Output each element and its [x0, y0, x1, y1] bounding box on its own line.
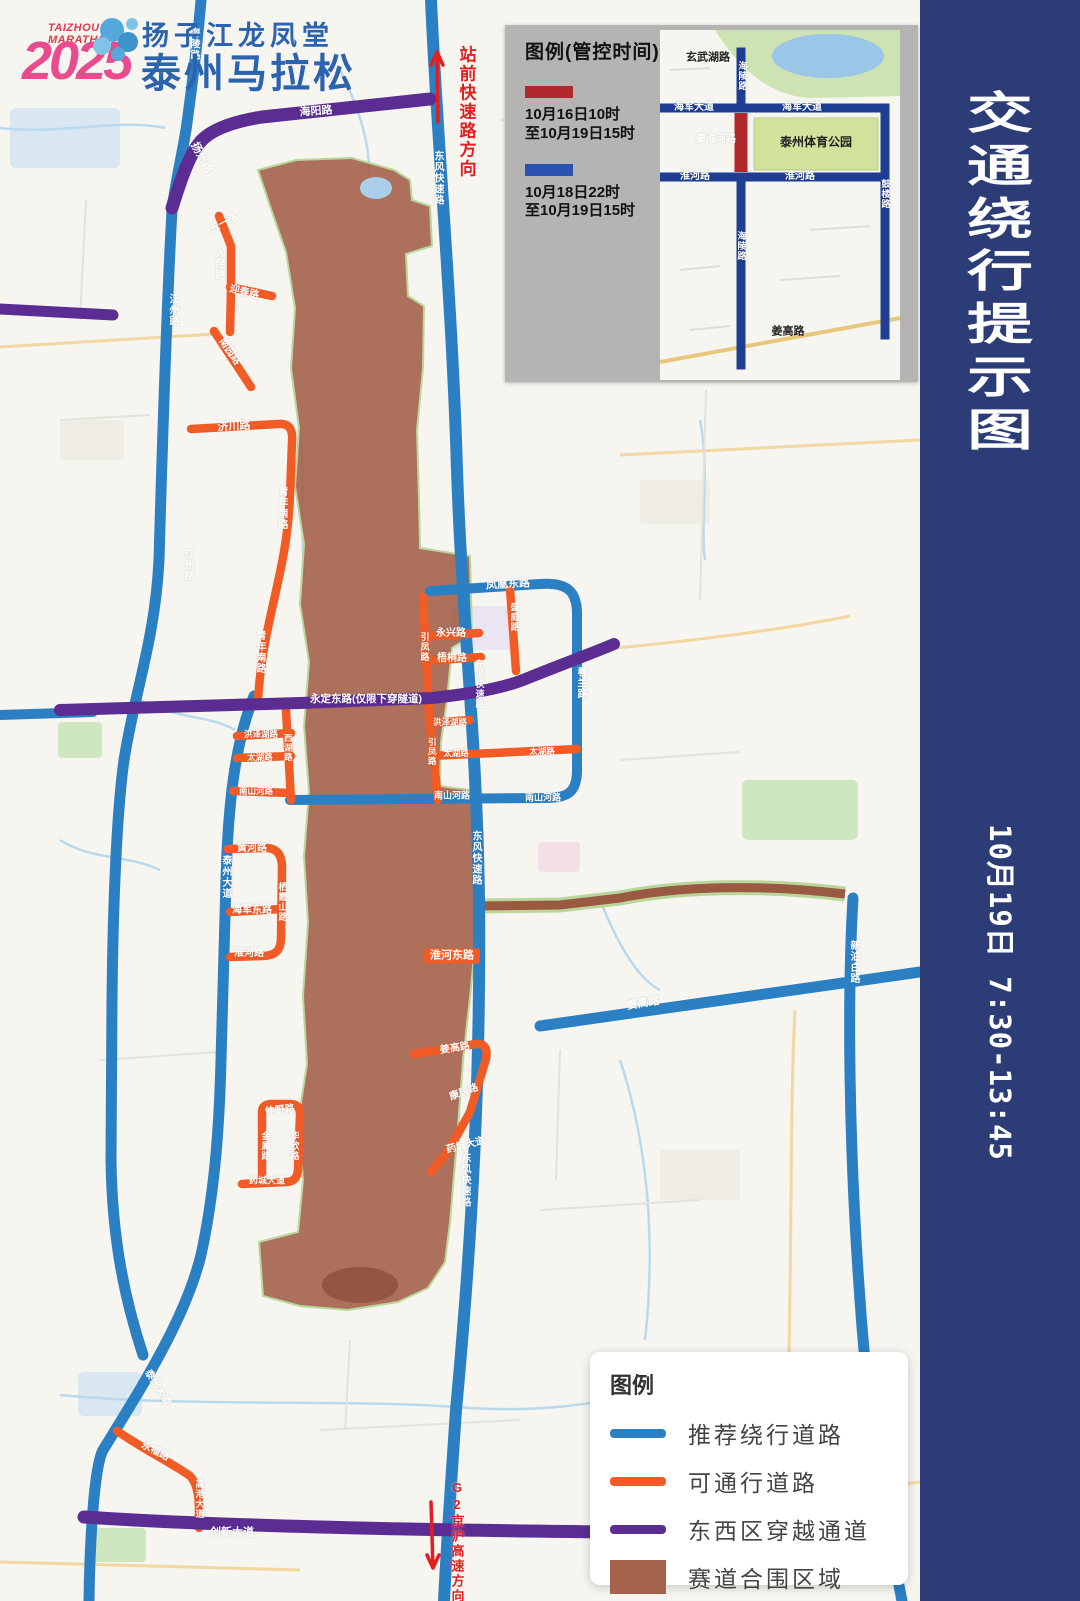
poster-canvas: 海陵路扬州路海阳路站前快速路方向东风快速路江州路五一路人民路迎春路南园路济川路青…	[0, 0, 1080, 1601]
control-legend-item: 10月18日22时 至10月19日15时	[525, 164, 660, 222]
map-legend-item: 东西区穿越通道	[610, 1512, 908, 1546]
red-swatch	[525, 86, 573, 98]
logo-cn-title: 泰州马拉松	[141, 41, 356, 99]
control-legend-panel: 图例(管控时间) 10月16日10时 至10月19日15时 10月18日22时 …	[505, 25, 918, 382]
inset-graphics	[660, 30, 900, 380]
title-sidebar: 交 通 绕 行 提 示 图 10月19日 7:30-13:45	[920, 0, 1080, 1601]
blue-swatch	[525, 164, 573, 176]
line-swatch	[610, 1477, 666, 1486]
legend-label: 可通行道路	[688, 1464, 818, 1498]
inset-map: 玄武湖路海陵路海军大道海军大道秦淮河路泰州体育公园淮河路淮河路海陵路鼓楼路姜高路	[660, 30, 900, 380]
poster-title: 交 通 绕 行 提 示 图	[880, 88, 1080, 458]
map-legend-item: 推荐绕行道路	[610, 1416, 908, 1450]
line-swatch	[610, 1525, 666, 1534]
marathon-logo: TAIZHOU MARATHON 2025 扬子江龙凤堂 泰州马拉松	[0, 0, 420, 110]
poster-date: 10月19日 7:30-13:45	[985, 824, 1023, 1158]
map-legend-item: 赛道合围区域	[610, 1560, 908, 1594]
map-legend-item: 可通行道路	[610, 1464, 908, 1498]
map-legend: 图例 推荐绕行道路可通行道路东西区穿越通道赛道合围区域	[590, 1352, 908, 1585]
area-swatch	[610, 1560, 666, 1594]
control-legend-title: 图例(管控时间)	[525, 37, 660, 64]
map-legend-rows: 推荐绕行道路可通行道路东西区穿越通道赛道合围区域	[610, 1416, 908, 1594]
map-legend-title: 图例	[610, 1368, 908, 1400]
line-swatch	[610, 1429, 666, 1438]
control-legend: 图例(管控时间) 10月16日10时 至10月19日15时 10月18日22时 …	[525, 37, 660, 241]
legend-label: 推荐绕行道路	[688, 1416, 844, 1450]
control-legend-item: 10月16日10时 至10月19日15时	[525, 86, 660, 144]
legend-label: 东西区穿越通道	[688, 1512, 870, 1546]
legend-label: 赛道合围区域	[688, 1560, 844, 1594]
